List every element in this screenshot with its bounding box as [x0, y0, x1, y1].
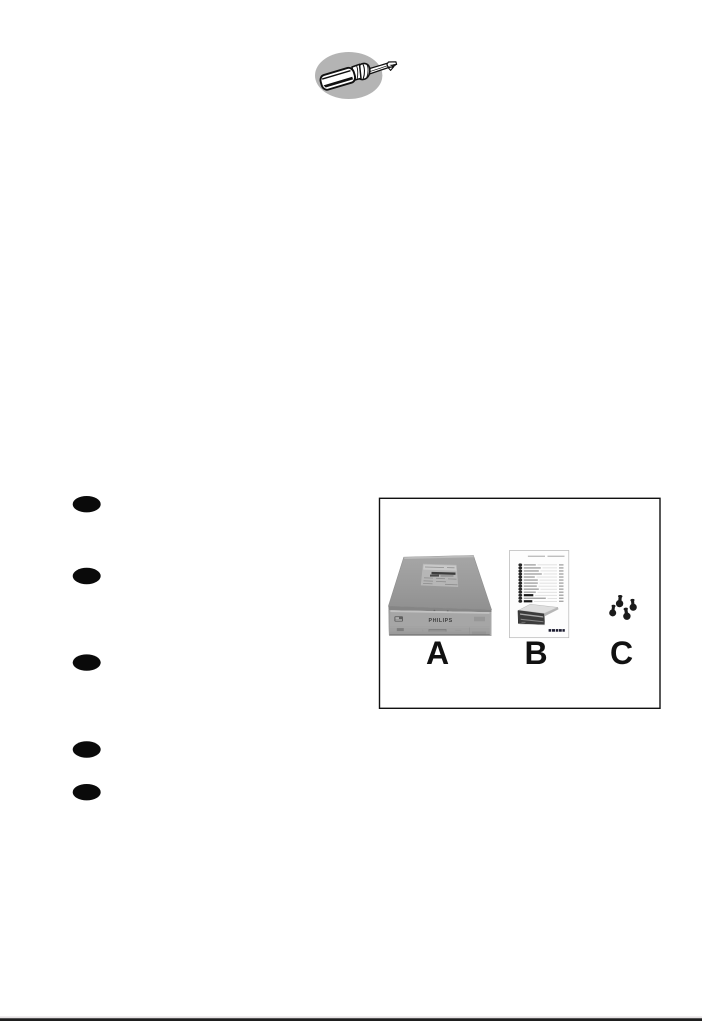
svg-text:C: C [610, 635, 633, 671]
svg-text:A: A [426, 635, 449, 671]
svg-text:B: B [524, 635, 547, 671]
svg-text:PHILIPS: PHILIPS [429, 618, 453, 624]
